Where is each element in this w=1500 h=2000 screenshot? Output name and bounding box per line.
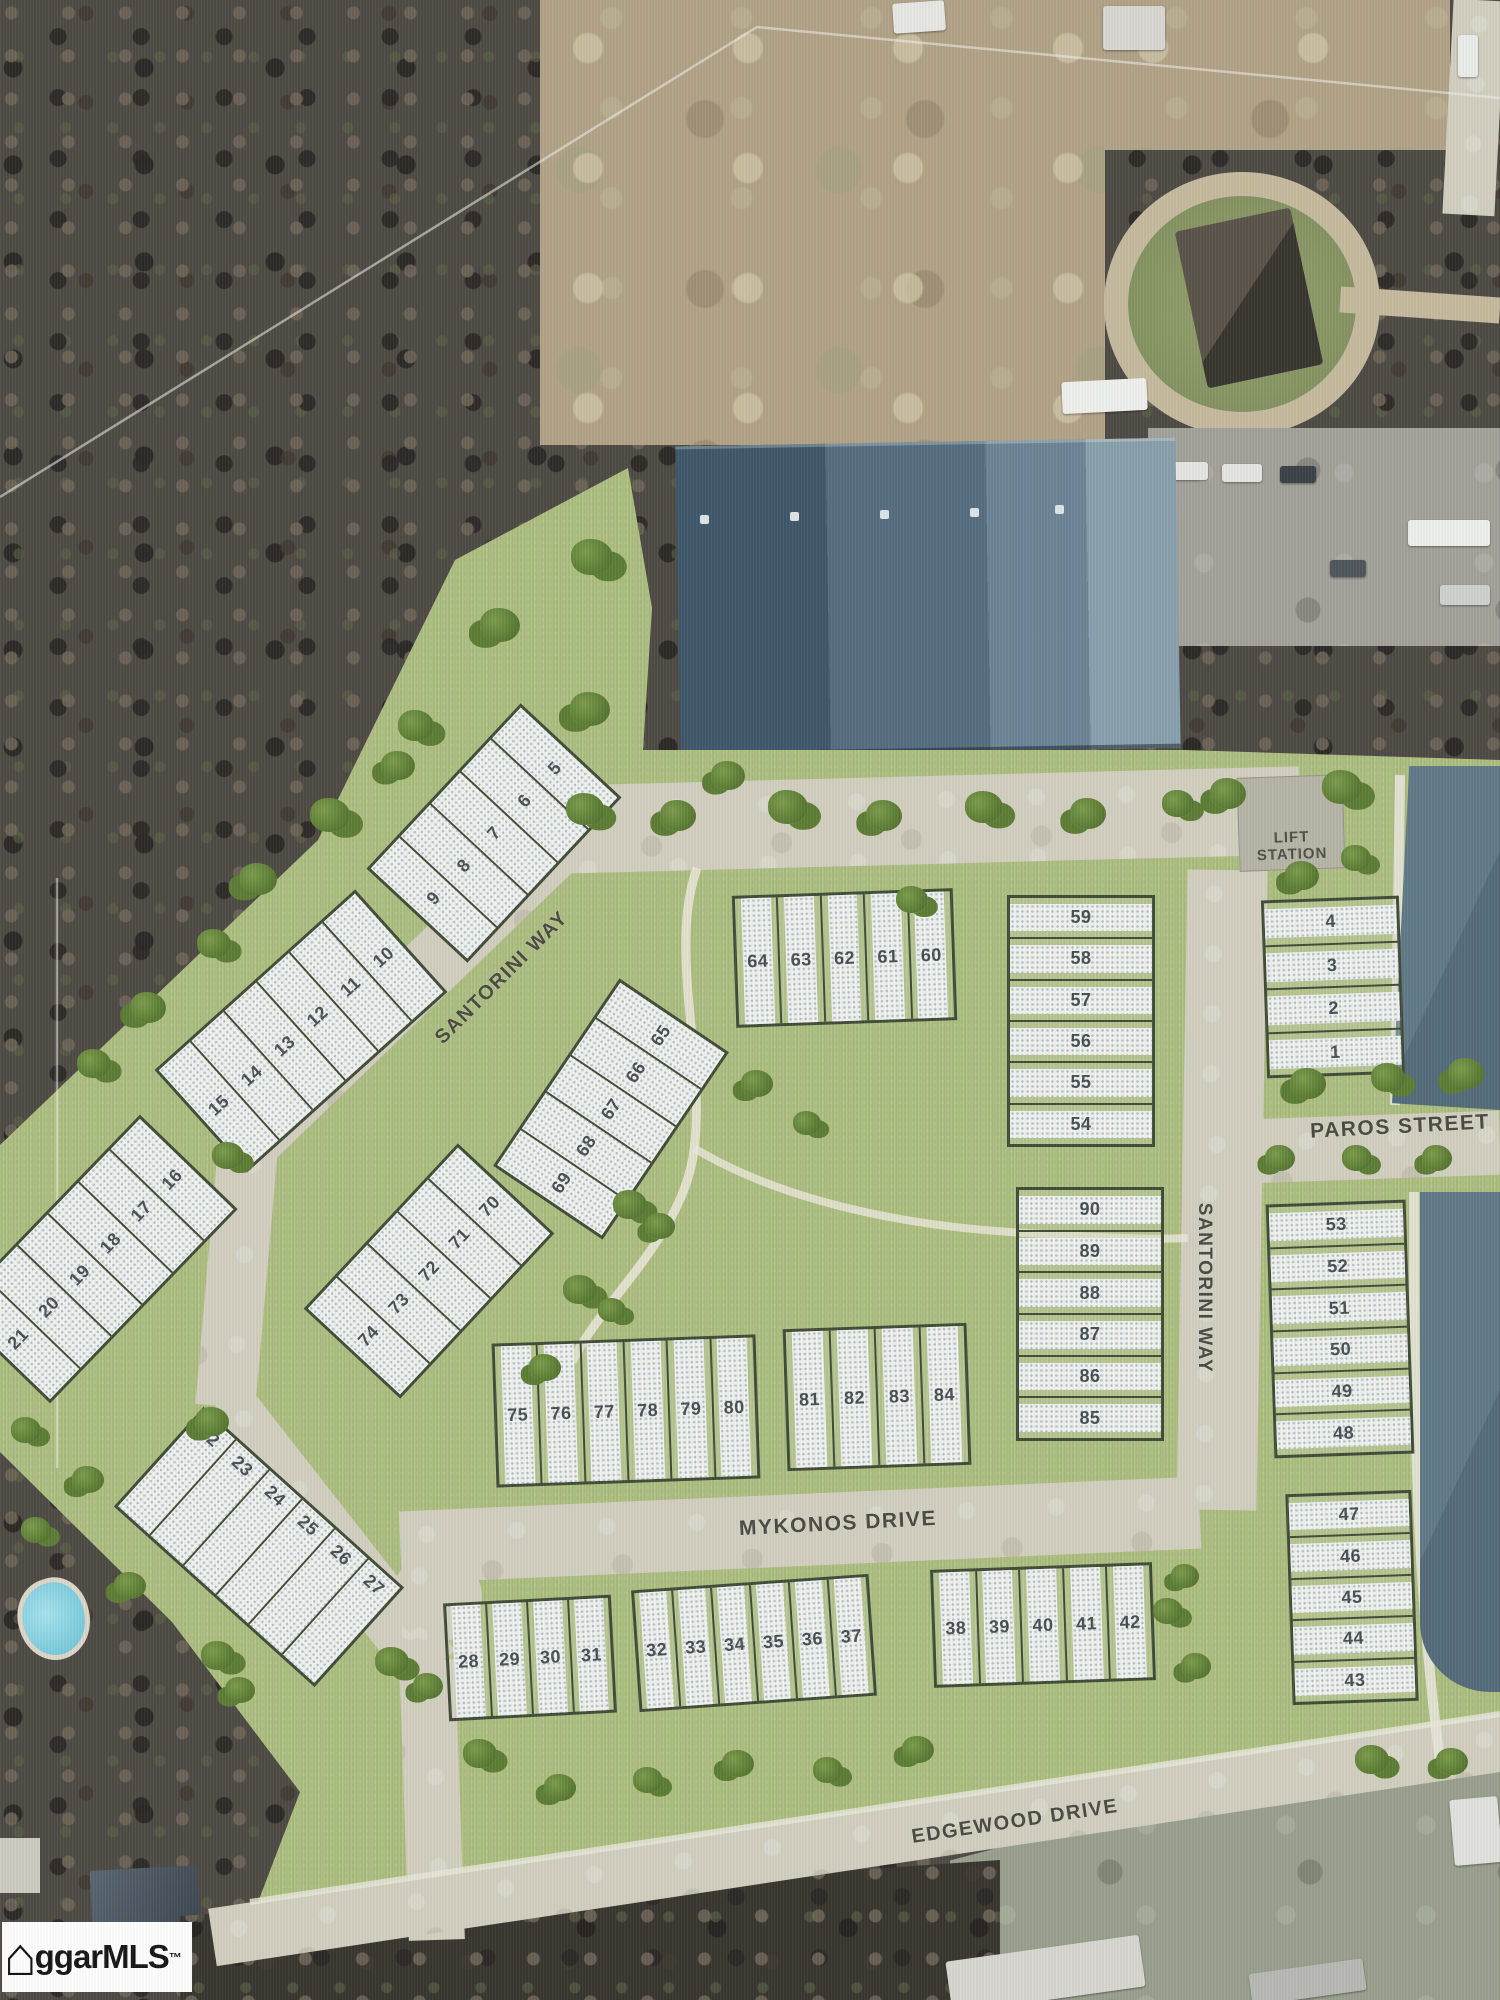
watermark-tm: ™ — [169, 1950, 182, 1965]
street-labels-layer: SANTORINI WAYPAROS STREETSANTORINI WAYMY… — [0, 0, 1500, 2000]
street-label-edgewood-drive: EDGEWOOD DRIVE — [910, 1795, 1120, 1849]
mls-watermark: ⌂ ggarMLS ™ — [2, 1922, 192, 1992]
street-label-santorini-way-diagonal: SANTORINI WAY — [431, 907, 573, 1049]
street-label-mykonos-drive: MYKONOS DRIVE — [738, 1507, 937, 1541]
street-label-santorini-way-vertical: SANTORINI WAY — [1193, 1203, 1215, 1373]
street-label-paros-street: PAROS STREET — [1310, 1110, 1491, 1143]
watermark-text: ggarMLS — [35, 1938, 169, 1976]
site-plan-map: LIFT STATION 987651514131211102120191817… — [0, 0, 1500, 2000]
house-icon: ⌂ — [4, 1933, 37, 1981]
